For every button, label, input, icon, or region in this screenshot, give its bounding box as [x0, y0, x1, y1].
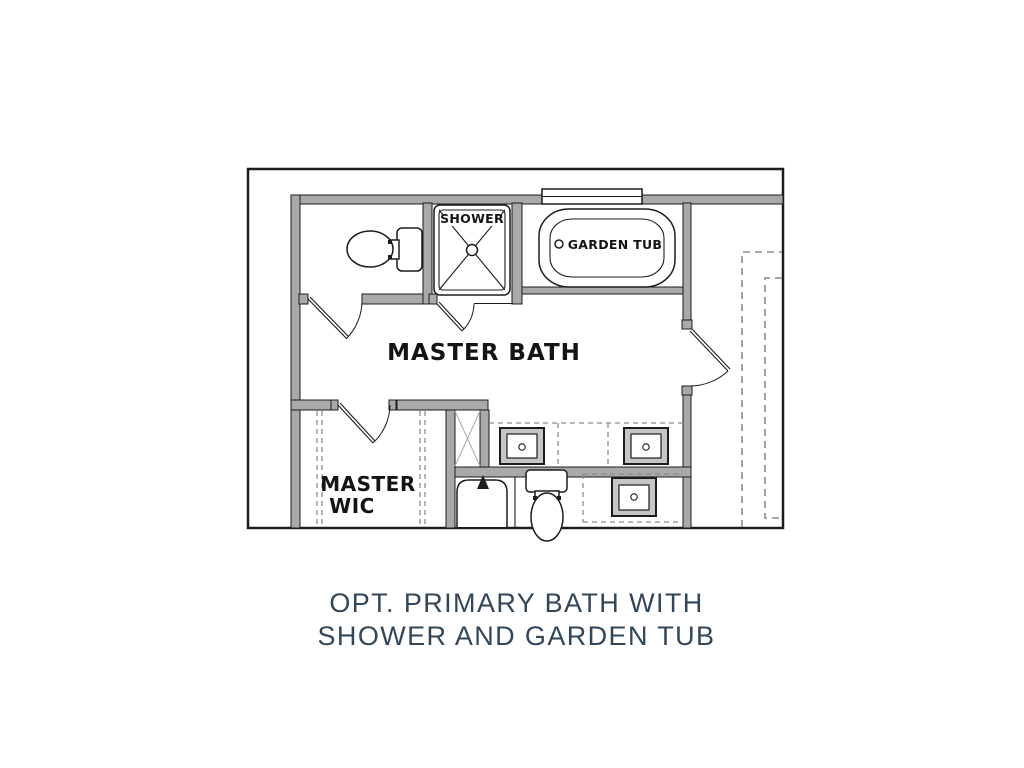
- tub-deck-edge: [522, 287, 683, 294]
- garden-tub-label: GARDEN TUB: [568, 237, 663, 252]
- door-jamb: [682, 386, 692, 395]
- garden-tub: GARDEN TUB: [539, 209, 675, 287]
- plan-caption: OPT. PRIMARY BATH WITH SHOWER AND GARDEN…: [248, 587, 785, 653]
- caption-line-1: OPT. PRIMARY BATH WITH: [248, 587, 785, 620]
- floor-plan-page: SHOWER GARDEN TUB: [0, 0, 1024, 768]
- shower-tub-wall: [512, 203, 522, 304]
- water-closet-bottom-wall: [362, 294, 423, 304]
- sink: [624, 428, 668, 464]
- linen-left-wall: [446, 410, 455, 528]
- sink: [500, 428, 544, 464]
- door-jamb: [331, 400, 338, 410]
- water-closet-shower-wall: [423, 203, 432, 304]
- door-jamb: [299, 294, 308, 304]
- wic-wall-stub: [291, 400, 331, 410]
- linen-right-wall: [480, 410, 489, 467]
- top-wall: [291, 195, 783, 204]
- wic-label-line1: MASTER: [320, 472, 416, 496]
- lower-toilet-fixture: [526, 470, 567, 541]
- shower-stall: SHOWER: [434, 205, 510, 295]
- door-jamb: [429, 294, 437, 304]
- bath-wic-wall: [397, 400, 488, 410]
- caption-line-2: SHOWER AND GARDEN TUB: [248, 620, 785, 653]
- door-jamb: [682, 320, 692, 329]
- right-wall-upper: [683, 203, 691, 320]
- sink: [612, 478, 656, 516]
- window: [542, 189, 642, 204]
- left-wall: [291, 195, 300, 528]
- tub-faucet: [555, 240, 563, 248]
- wic-label-line2: WIC: [329, 494, 375, 518]
- shower-label: SHOWER: [440, 211, 504, 226]
- vanity-wall: [455, 467, 691, 477]
- master-bath-label: MASTER BATH: [387, 340, 581, 366]
- right-wall-lower: [683, 386, 691, 528]
